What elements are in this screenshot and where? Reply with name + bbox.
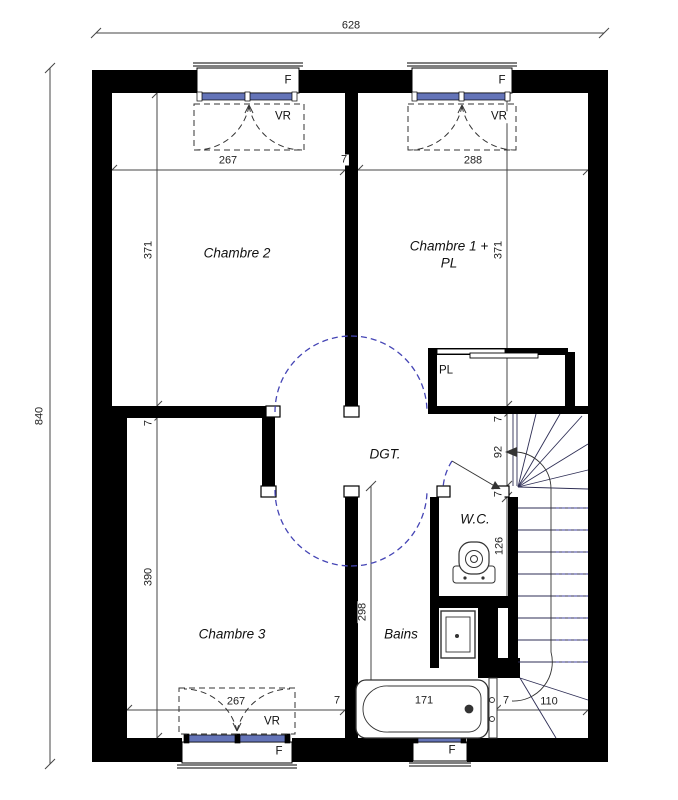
bathtub-icon <box>356 680 495 738</box>
dim-chambre3-width: 267 <box>225 697 247 708</box>
dim-chambre3-height: 390 <box>144 566 155 588</box>
toilet-icon <box>453 542 495 583</box>
room-label-bains: Bains <box>382 627 420 641</box>
plan-linework <box>0 0 678 800</box>
room-label-chambre1-line1: Chambre 1 + <box>408 239 490 253</box>
stairs <box>513 414 588 738</box>
room-label-chambre1-line2: PL <box>439 256 460 270</box>
dim-wall-7: 7 <box>494 414 505 424</box>
dim-wall-7: 7 <box>332 696 342 707</box>
shutter-vr-label-1: VR <box>273 111 293 123</box>
dim-chambre1-width: 288 <box>462 156 484 167</box>
dim-total-width: 628 <box>340 21 362 32</box>
dim-wall-7: 7 <box>501 696 511 707</box>
shutter-vr-label-2: VR <box>489 111 509 123</box>
room-label-chambre3: Chambre 3 <box>197 627 268 641</box>
room-label-chambre2: Chambre 2 <box>202 246 273 260</box>
wc-door-leaf <box>452 461 502 491</box>
dim-wall-7: 7 <box>339 155 349 166</box>
room-label-wc: W.C. <box>458 512 492 526</box>
dimension-lines <box>45 28 609 769</box>
dim-stair-width: 110 <box>538 697 560 708</box>
room-label-degagement: DGT. <box>367 447 402 461</box>
dim-tub-length: 171 <box>413 696 435 707</box>
dim-chambre1-height: 371 <box>494 239 505 261</box>
dim-wall-7: 7 <box>494 489 505 499</box>
tap-icon <box>490 717 495 722</box>
dim-bains-height: 298 <box>358 601 369 623</box>
door-swing-arcs <box>275 336 452 566</box>
window-f-label-1: F <box>282 75 293 87</box>
tap-icon <box>490 698 495 703</box>
basin-icon <box>441 611 475 658</box>
window-f-label-4: F <box>446 745 457 757</box>
shutter-vr-label-3: VR <box>262 716 282 728</box>
dim-stair-opening: 92 <box>494 444 505 460</box>
floor-plan: 628 840 267 7 288 371 7 390 371 7 92 7 1… <box>0 0 678 800</box>
dim-total-height: 840 <box>35 405 46 427</box>
window-f-label-3: F <box>273 746 284 758</box>
window-f-label-2: F <box>496 75 507 87</box>
dim-wall-7: 7 <box>144 418 155 428</box>
tub-partition <box>489 678 497 738</box>
dim-chambre2-width: 267 <box>217 156 239 167</box>
stair-tremie-dashes <box>556 508 588 662</box>
room-label-placard: PL <box>437 365 455 377</box>
dim-wc-depth: 126 <box>495 535 506 557</box>
dim-chambre2-height: 371 <box>144 239 155 261</box>
